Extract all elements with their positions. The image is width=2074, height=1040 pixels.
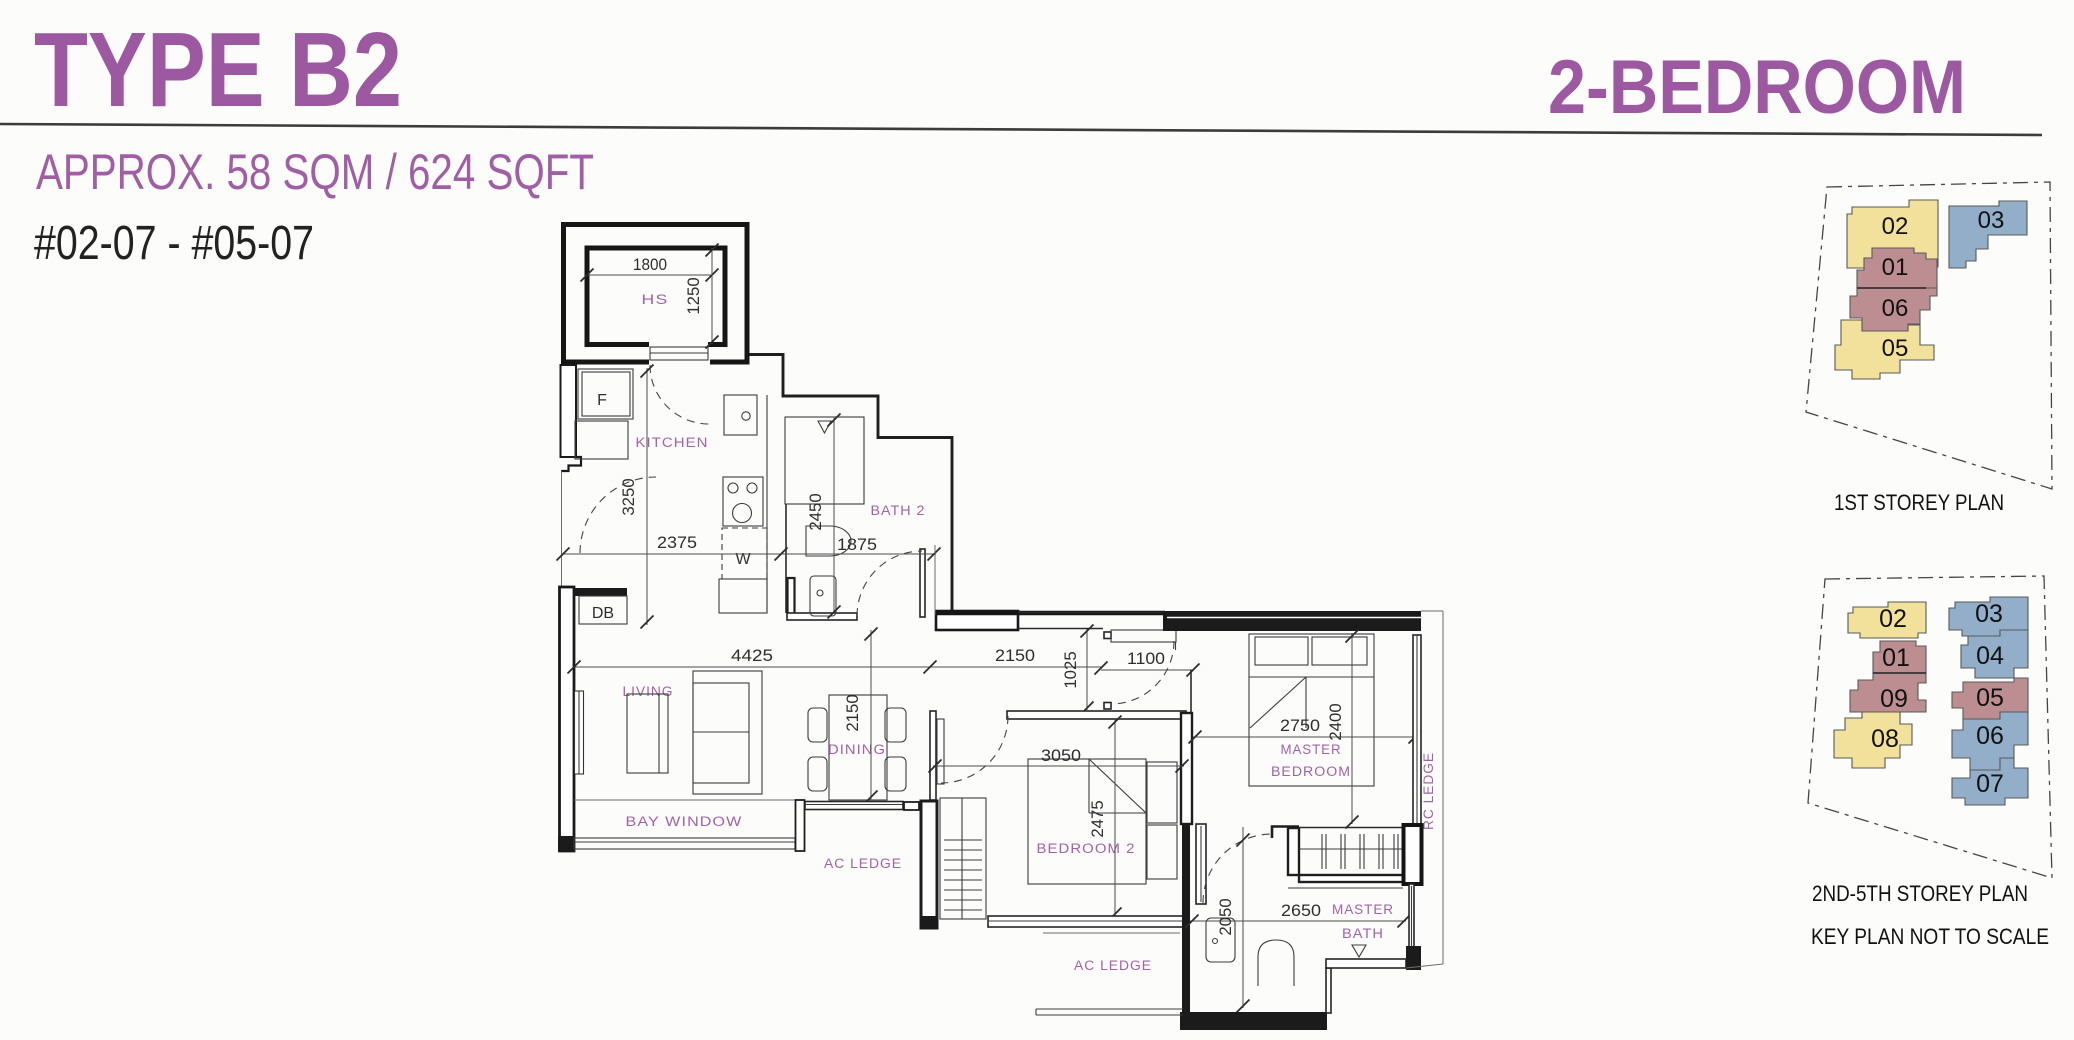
svg-text:2650: 2650 bbox=[1281, 901, 1321, 920]
svg-text:02: 02 bbox=[1882, 213, 1909, 240]
svg-text:07: 07 bbox=[1976, 770, 2004, 798]
svg-text:APPROX. 58 SQM / 624 SQFT: APPROX. 58 SQM / 624 SQFT bbox=[36, 144, 594, 200]
svg-text:#02-07 - #05-07: #02-07 - #05-07 bbox=[34, 217, 314, 270]
svg-text:HS: HS bbox=[642, 292, 669, 308]
svg-text:2475: 2475 bbox=[1088, 800, 1107, 837]
svg-text:2-BEDROOM: 2-BEDROOM bbox=[1548, 45, 1966, 130]
svg-text:4425: 4425 bbox=[731, 646, 773, 665]
svg-text:F: F bbox=[597, 392, 607, 409]
svg-text:05: 05 bbox=[1882, 335, 1909, 362]
svg-text:03: 03 bbox=[1975, 600, 2003, 628]
svg-text:MASTER: MASTER bbox=[1281, 742, 1342, 758]
svg-text:1875: 1875 bbox=[837, 535, 877, 554]
svg-text:06: 06 bbox=[1976, 722, 2004, 750]
svg-text:01: 01 bbox=[1882, 254, 1909, 281]
svg-text:LIVING: LIVING bbox=[623, 684, 674, 700]
svg-text:05: 05 bbox=[1976, 684, 2004, 712]
svg-text:1ST STOREY PLAN: 1ST STOREY PLAN bbox=[1834, 490, 2004, 515]
svg-text:KITCHEN: KITCHEN bbox=[636, 435, 709, 451]
svg-text:3250: 3250 bbox=[619, 478, 638, 515]
svg-text:2150: 2150 bbox=[995, 646, 1035, 665]
svg-text:2400: 2400 bbox=[1326, 703, 1345, 740]
svg-text:2050: 2050 bbox=[1216, 898, 1235, 935]
svg-text:03: 03 bbox=[1978, 207, 2005, 234]
svg-text:BEDROOM 2: BEDROOM 2 bbox=[1037, 841, 1136, 857]
svg-text:BATH: BATH bbox=[1342, 926, 1384, 942]
svg-text:06: 06 bbox=[1882, 295, 1909, 322]
svg-text:KEY PLAN NOT TO SCALE: KEY PLAN NOT TO SCALE bbox=[1811, 924, 2049, 949]
svg-text:09: 09 bbox=[1880, 685, 1908, 713]
svg-text:2750: 2750 bbox=[1280, 716, 1320, 735]
svg-text:1025: 1025 bbox=[1061, 651, 1080, 688]
svg-text:04: 04 bbox=[1976, 642, 2004, 670]
svg-text:1100: 1100 bbox=[1127, 649, 1165, 668]
svg-text:1800: 1800 bbox=[633, 255, 667, 274]
svg-text:DINING: DINING bbox=[828, 742, 886, 758]
svg-text:08: 08 bbox=[1871, 725, 1899, 753]
svg-text:2ND-5TH STOREY PLAN: 2ND-5TH STOREY PLAN bbox=[1812, 881, 2028, 906]
svg-text:2450: 2450 bbox=[806, 493, 825, 530]
svg-text:DB: DB bbox=[592, 605, 614, 622]
svg-text:2375: 2375 bbox=[657, 533, 697, 552]
svg-text:RC LEDGE: RC LEDGE bbox=[1421, 752, 1437, 830]
svg-text:3050: 3050 bbox=[1041, 746, 1081, 765]
svg-text:1250: 1250 bbox=[684, 277, 703, 314]
svg-text:01: 01 bbox=[1882, 644, 1910, 672]
svg-text:AC LEDGE: AC LEDGE bbox=[824, 856, 902, 872]
svg-text:BATH 2: BATH 2 bbox=[871, 503, 926, 519]
svg-text:AC LEDGE: AC LEDGE bbox=[1074, 958, 1152, 974]
svg-text:TYPE B2: TYPE B2 bbox=[34, 11, 402, 129]
svg-text:02: 02 bbox=[1879, 605, 1907, 633]
svg-text:BEDROOM: BEDROOM bbox=[1271, 764, 1351, 780]
svg-text:2150: 2150 bbox=[843, 694, 862, 731]
svg-text:BAY WINDOW: BAY WINDOW bbox=[626, 814, 743, 830]
svg-text:MASTER: MASTER bbox=[1332, 902, 1394, 918]
